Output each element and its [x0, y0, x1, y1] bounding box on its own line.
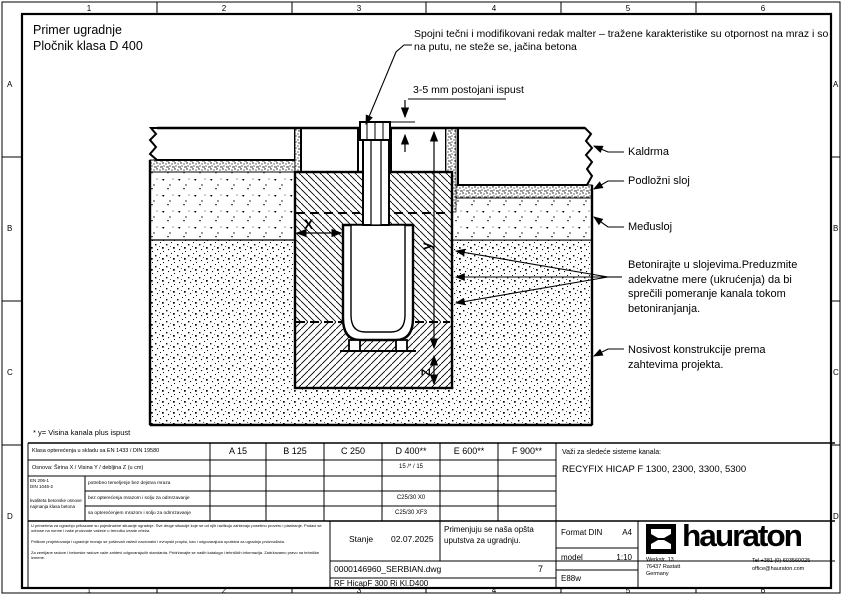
ruler-row-d-r: D	[833, 512, 839, 521]
ruler-row-a-r: A	[833, 80, 838, 89]
osnova-d400-value: 15 /* / 15	[382, 464, 440, 471]
scale-label: model	[561, 553, 583, 562]
address-line2: 76437 Rastatt	[646, 564, 680, 571]
file-name: 0000146960_SERBIAN.dwg	[334, 564, 441, 574]
stanje-date: 02.07.2025	[391, 534, 434, 544]
drawing-title-line2: Pločnik klasa D 400	[33, 39, 143, 54]
label-nosivost: Nosivost konstrukcije prema zahtevima pr…	[628, 343, 808, 372]
table-class-row-label: Klasa opterećenja u skladu sa EN 1433 / …	[32, 448, 159, 454]
label-betoniranje: Betonirajte u slojevima.Preduzmite adekv…	[628, 258, 800, 316]
drawing-title-line1: Primer ugradnje	[33, 23, 122, 38]
table-osnova-label: Osnova: Širina X / Visina Y / debljina Z…	[32, 465, 143, 471]
beton-group-line3: kvaliteta betonske osnove	[30, 498, 82, 503]
joint-mortar-note: Spojni tečni i modifikovani redak malter…	[414, 28, 838, 54]
ruler-row-a: A	[7, 80, 12, 89]
label-medjusloj: Međusloj	[628, 221, 672, 234]
systems-label: Važi za sledeće sisteme kanala:	[562, 449, 661, 457]
systems-list: RECYFIX HICAP F 1300, 2300, 3300, 5300	[562, 464, 746, 475]
label-kaldrma: Kaldrma	[628, 146, 669, 159]
ruler-row-b-r: B	[833, 224, 838, 233]
address-line1: Werkstr. 13	[646, 557, 674, 564]
ruler-row-c-r: C	[833, 368, 839, 377]
install-note: Primenjuju se naša opšta uputstva za ugr…	[444, 525, 550, 546]
page-number: 7	[495, 564, 543, 575]
beton-group-norm2: DIN 1045-2	[30, 484, 53, 489]
code-value: E88w	[561, 574, 581, 583]
beton-d400-xf3: C25/30 XF3	[382, 510, 440, 517]
format-value: A4	[600, 528, 632, 537]
ruler-col-1: 1	[76, 4, 102, 13]
beton-group-line4: najmanja klasa betona	[30, 504, 75, 509]
drawing-name: RF HicapF 300 Ri Kl.D400	[334, 579, 428, 588]
dim-x-label: X	[304, 216, 314, 232]
hauraton-logo-icon	[646, 524, 676, 554]
disclaimer-p2: Prilikom projektovanja i ugradnje moraju…	[31, 539, 327, 544]
ruler-col-2b: 2	[211, 586, 237, 595]
format-label: Format DIN	[561, 528, 602, 537]
class-a15: A 15	[210, 446, 266, 457]
ruler-col-4b: 4	[481, 586, 507, 595]
class-b125: B 125	[266, 446, 324, 457]
ruler-col-4: 4	[481, 4, 507, 13]
scale-value: 1:10	[600, 553, 632, 562]
drawing-sheet: X y Z	[0, 0, 842, 595]
ruler-row-b: B	[7, 224, 12, 233]
ruler-col-6b: 6	[750, 586, 776, 595]
ruler-col-5b: 5	[615, 586, 641, 595]
phone-line: Tel +381 (0) 603560025	[752, 558, 810, 564]
ruler-col-3: 3	[346, 4, 372, 13]
stanje-label: Stanje	[349, 534, 373, 544]
label-podlozni-sloj: Podložni sloj	[628, 175, 690, 188]
ruler-col-1b: 1	[76, 586, 102, 595]
ruler-row-d: D	[7, 512, 13, 521]
ruler-col-6: 6	[750, 4, 776, 13]
dim-z-label: Z	[419, 369, 433, 376]
beton-group-norm1: EN 206-1	[30, 478, 49, 483]
dim-y-label: y	[418, 242, 434, 250]
footnote-y: * y= Visina kanala plus ispust	[33, 429, 130, 438]
ruler-col-2: 2	[211, 4, 237, 13]
email-line: office@hauraton.com	[752, 566, 804, 572]
beton-row1-label: potrebno temeljenje bez dejstva mraza	[88, 481, 170, 487]
beton-d400-x0: C25/30 X0	[382, 495, 440, 502]
beton-row3-label: sa opterećenjem mrazom i solju za odmrza…	[88, 511, 191, 517]
address-line3: Germany	[646, 571, 669, 578]
ruler-row-c: C	[7, 368, 13, 377]
brand-wordmark: hauraton	[682, 518, 801, 555]
disclaimer-p1: U primerima za ugradnju prikazane su poj…	[31, 523, 327, 533]
gap-dimension-note: 3-5 mm postojani ispust	[413, 84, 524, 96]
ruler-col-5: 5	[615, 4, 641, 13]
class-f900: F 900**	[498, 446, 556, 457]
disclaimer-p3: Za zemljane radove i betonske radove važ…	[31, 550, 327, 560]
class-e600: E 600**	[440, 446, 498, 457]
beton-row2-label: bez opterećenja mrazom i solju za odmrza…	[88, 496, 190, 502]
class-c250: C 250	[324, 446, 382, 457]
class-d400: D 400**	[382, 446, 440, 457]
